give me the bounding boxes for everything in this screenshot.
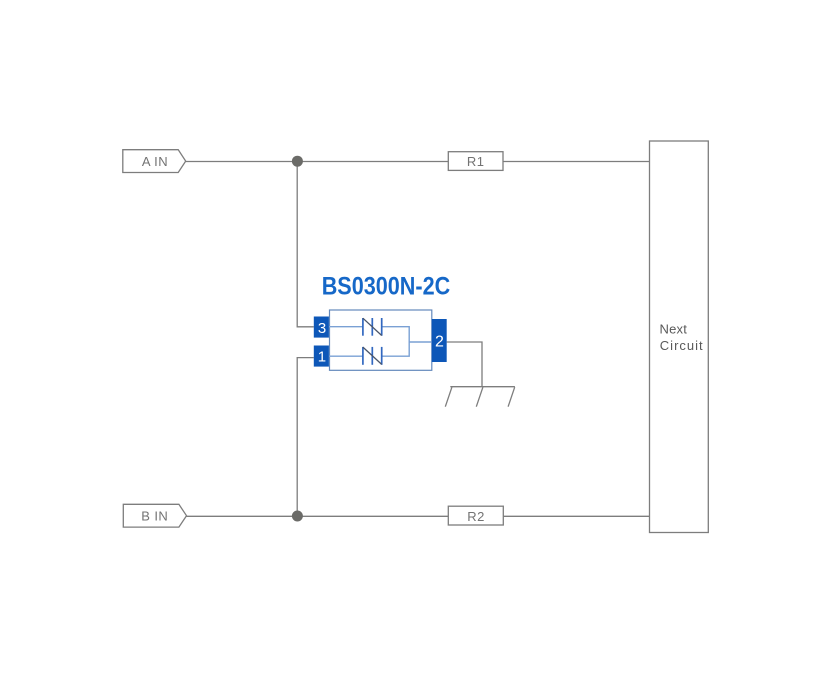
svg-text:Circuit: Circuit xyxy=(660,338,704,353)
svg-text:Next: Next xyxy=(660,322,688,337)
svg-text:2: 2 xyxy=(435,334,444,351)
svg-text:BS0300N-2C: BS0300N-2C xyxy=(322,272,451,300)
svg-text:1: 1 xyxy=(318,349,326,366)
svg-text:A IN: A IN xyxy=(142,154,168,169)
svg-text:R1: R1 xyxy=(467,154,485,169)
svg-text:3: 3 xyxy=(318,320,326,337)
svg-text:B IN: B IN xyxy=(141,509,168,524)
svg-text:R2: R2 xyxy=(467,509,485,524)
